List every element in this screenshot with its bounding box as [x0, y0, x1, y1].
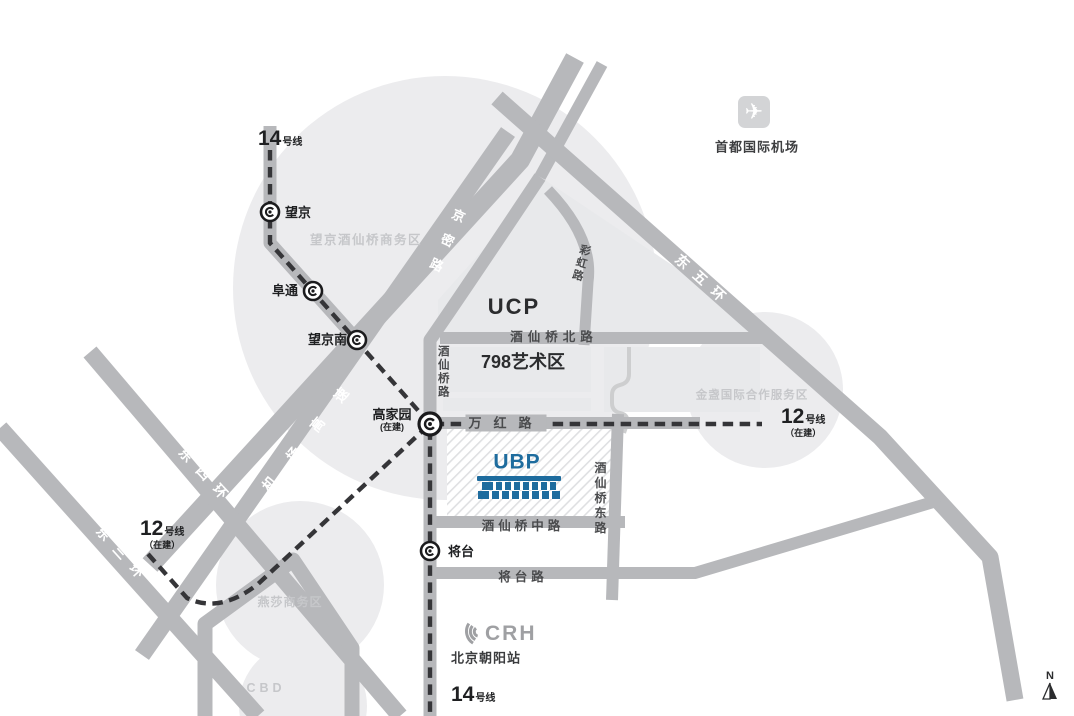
station-marker-wangjing-south — [348, 331, 366, 349]
district-label-jinzhan: 金盏国际合作服务区 — [696, 390, 809, 402]
line-14-number: 14 — [258, 127, 281, 150]
road-label-jiangtai-road: 将台路 — [498, 571, 548, 584]
station-marker-wangjing — [261, 203, 279, 221]
crh-text: CRH — [485, 622, 537, 646]
station-name: 高家园 — [372, 408, 411, 421]
airport-icon: ✈ — [738, 96, 770, 128]
road-label-jiuxianqiao-east: 酒仙桥东路 — [594, 462, 606, 537]
crh-waves-icon — [453, 620, 483, 649]
station-marker-jiangtai — [421, 542, 439, 560]
ubp-building-icon — [477, 476, 561, 499]
district-label-yansha: 燕莎商务区 — [257, 596, 322, 608]
station-label-wangjing: 望京 — [285, 206, 311, 219]
airplane-glyph: ✈ — [745, 99, 763, 125]
station-label-wangjing-south: 望京南 — [308, 333, 347, 346]
line-14-suffix: 号线 — [282, 137, 302, 148]
line-12-suffix: 号线 — [805, 415, 825, 426]
road-label-jiuxianqiao-mid: 酒仙桥中路 — [482, 520, 565, 533]
north-arrow-icon — [1042, 682, 1058, 700]
building-floor-1 — [482, 482, 556, 490]
station-status: (在建) — [372, 423, 411, 432]
district-label-ucp: UCP — [488, 296, 540, 318]
district-label-798: 798艺术区 — [481, 353, 565, 371]
compass-n-letter: N — [1042, 670, 1058, 682]
district-label-cbd: CBD — [246, 682, 285, 695]
chaoyang-station-label: 北京朝阳站 — [451, 652, 521, 665]
road-label-jiuxianqiao: 酒仙桥路 — [436, 345, 448, 399]
line-14-number: 14 — [451, 683, 474, 706]
road-label-jiuxianqiao-north: 酒仙桥北路 — [510, 331, 598, 344]
area-798-strip — [443, 398, 591, 411]
district-label-wangjing-biz: 望京酒仙桥商务区 — [310, 234, 422, 247]
line-14-label-top: 14号线 — [258, 128, 302, 149]
line-12-suffix: 号线 — [164, 527, 184, 538]
road-label-text: 万红路 — [465, 415, 546, 432]
station-marker-gaojiayuan-interchange — [419, 413, 441, 435]
compass-north: N — [1042, 670, 1058, 705]
line-12-status: （在建） — [140, 541, 184, 550]
ubp-hatch-area — [447, 429, 612, 518]
station-marker-futong — [304, 282, 322, 300]
line-12-number: 12 — [781, 405, 804, 428]
crh-logo: CRH — [455, 622, 537, 646]
station-label-gaojiayuan: 高家园 (在建) — [372, 408, 411, 432]
line-12-number: 12 — [140, 517, 163, 540]
station-label-jiangtai: 将台 — [448, 545, 474, 558]
line-14-suffix: 号线 — [475, 693, 495, 704]
road-label-wanhong: 万红路 — [465, 417, 546, 430]
line-12-label-west: 12号线 （在建） — [140, 518, 184, 550]
ubp-label: UBP — [493, 452, 540, 473]
building-floor-2 — [478, 491, 560, 499]
building-roof — [477, 476, 561, 481]
station-label-futong: 阜通 — [272, 284, 298, 297]
line-14-label-bottom: 14号线 — [451, 684, 495, 705]
location-map: 14号线 14号线 12号线 （在建） 12号线 （在建） 望京 阜通 望京南 … — [0, 0, 1074, 716]
line-12-label-east: 12号线 （在建） — [781, 406, 825, 438]
line-12-status: （在建） — [781, 429, 825, 438]
airport-label: 首都国际机场 — [715, 141, 799, 154]
